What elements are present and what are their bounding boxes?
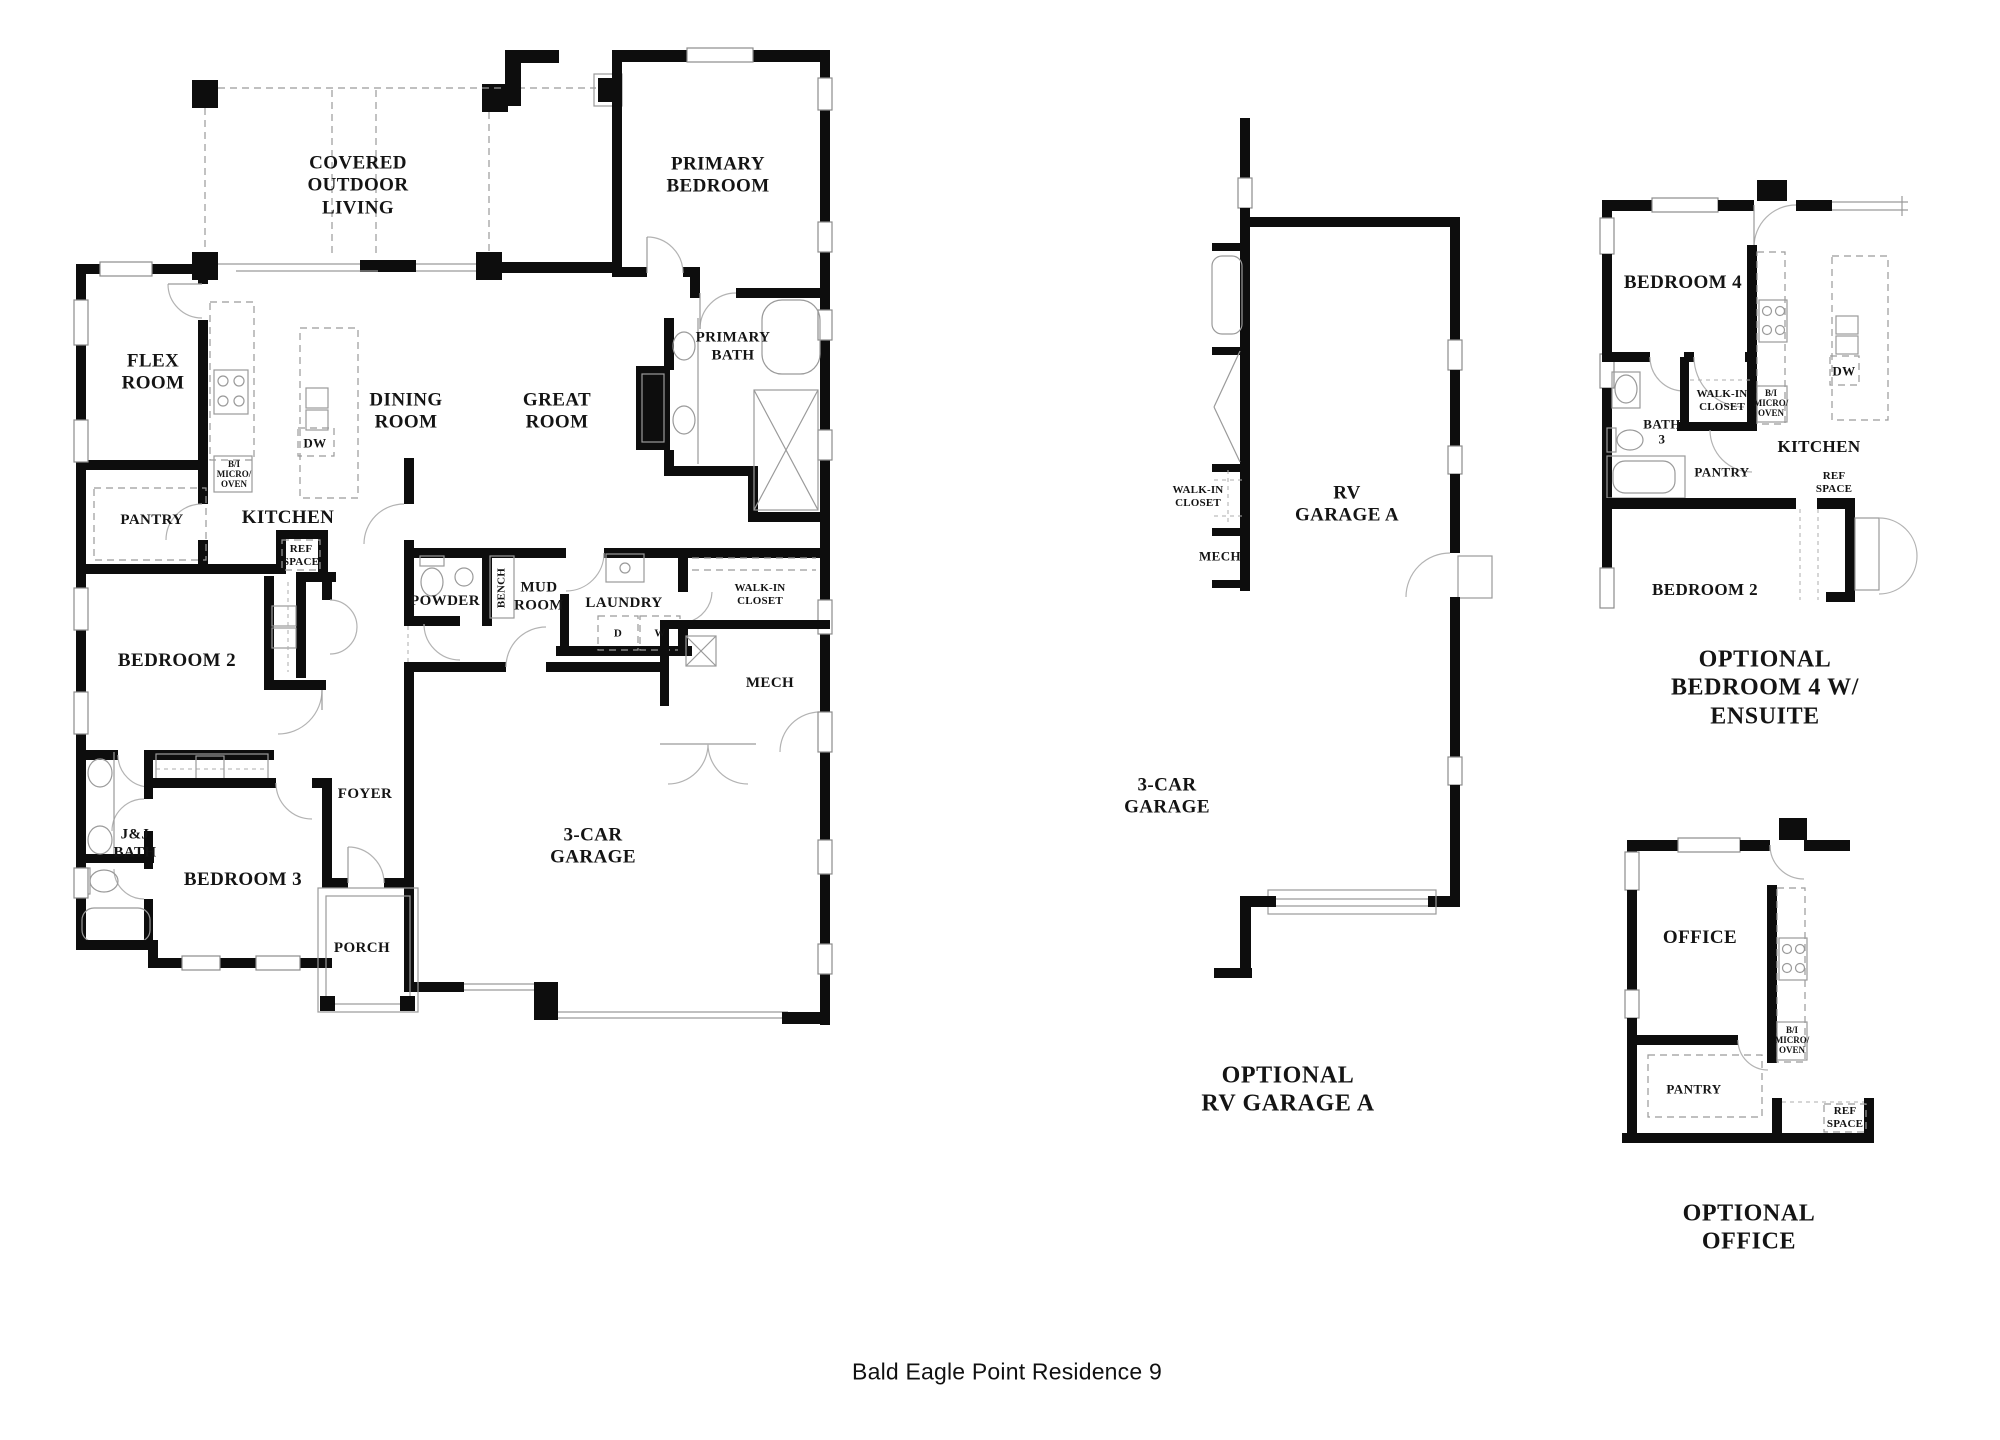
caption-optional-bedroom-4: OPTIONAL BEDROOM 4 W/ ENSUITE: [1671, 646, 1859, 731]
label-office: OFFICE: [1663, 927, 1737, 949]
label-bedroom-2: BEDROOM 2: [118, 650, 236, 672]
label-b4-bedroom-4: BEDROOM 4: [1624, 272, 1742, 294]
label-bench: BENCH: [496, 568, 509, 608]
label-primary-bath: PRIMARY BATH: [696, 329, 771, 364]
label-dining-room: DINING ROOM: [369, 390, 442, 435]
label-office-pantry: PANTRY: [1666, 1081, 1721, 1096]
caption-optional-office: OPTIONAL OFFICE: [1683, 1200, 1816, 1257]
floor-plan-sheet: COVERED OUTDOOR LIVING PRIMARY BEDROOM P…: [0, 0, 2000, 1440]
label-rv-walk-in-closet: WALK-IN CLOSET: [1173, 484, 1224, 510]
label-primary-bedroom: PRIMARY BEDROOM: [666, 154, 769, 199]
office-option-linework: [1622, 818, 1874, 1143]
caption-optional-rv-garage-a: OPTIONAL RV GARAGE A: [1201, 1062, 1374, 1119]
label-rv-mech: MECH: [1199, 548, 1241, 563]
label-pantry: PANTRY: [120, 512, 183, 530]
label-rv-3-car-garage: 3-CAR GARAGE: [1124, 775, 1210, 820]
label-b4-bath-3: BATH 3: [1643, 417, 1680, 448]
label-office-bi-micro-oven: B/I MICRO/ OVEN: [1775, 1026, 1810, 1056]
label-b4-bi-micro-oven: B/I MICRO/ OVEN: [1754, 389, 1789, 419]
label-mech: MECH: [746, 675, 794, 693]
label-dw: DW: [303, 435, 326, 450]
label-foyer: FOYER: [338, 786, 393, 804]
label-b4-bedroom-2: BEDROOM 2: [1652, 580, 1758, 600]
label-powder: POWDER: [410, 593, 480, 611]
label-kitchen: KITCHEN: [242, 507, 335, 529]
rv-garage-option-linework: [1212, 118, 1492, 978]
label-ref-space: REF SPACE: [283, 543, 319, 569]
label-washer: W: [654, 628, 665, 641]
label-b4-kitchen: KITCHEN: [1777, 437, 1860, 457]
label-bi-micro-oven: B/I MICRO/ OVEN: [217, 460, 252, 490]
label-b4-dw: DW: [1832, 363, 1855, 378]
label-b4-walk-in-closet: WALK-IN CLOSET: [1697, 388, 1748, 414]
label-covered-outdoor-living: COVERED OUTDOOR LIVING: [308, 152, 409, 219]
label-office-ref-space: REF SPACE: [1827, 1105, 1863, 1131]
label-b4-ref-space: REF SPACE: [1816, 470, 1852, 496]
label-rv-garage-a: RV GARAGE A: [1295, 483, 1399, 528]
label-3-car-garage: 3-CAR GARAGE: [550, 825, 636, 870]
label-jj-bath: J&J BATH: [114, 826, 157, 861]
label-dryer: D: [614, 628, 622, 641]
label-flex-room: FLEX ROOM: [122, 351, 185, 396]
label-porch: PORCH: [334, 940, 390, 958]
sheet-title: Bald Eagle Point Residence 9: [852, 1359, 1162, 1386]
label-great-room: GREAT ROOM: [523, 390, 591, 435]
label-b4-pantry: PANTRY: [1694, 464, 1749, 479]
label-bedroom-3: BEDROOM 3: [184, 869, 302, 891]
label-laundry: LAUNDRY: [585, 595, 662, 613]
label-mud-room: MUD ROOM: [514, 579, 564, 614]
label-walk-in-closet: WALK-IN CLOSET: [735, 582, 786, 608]
